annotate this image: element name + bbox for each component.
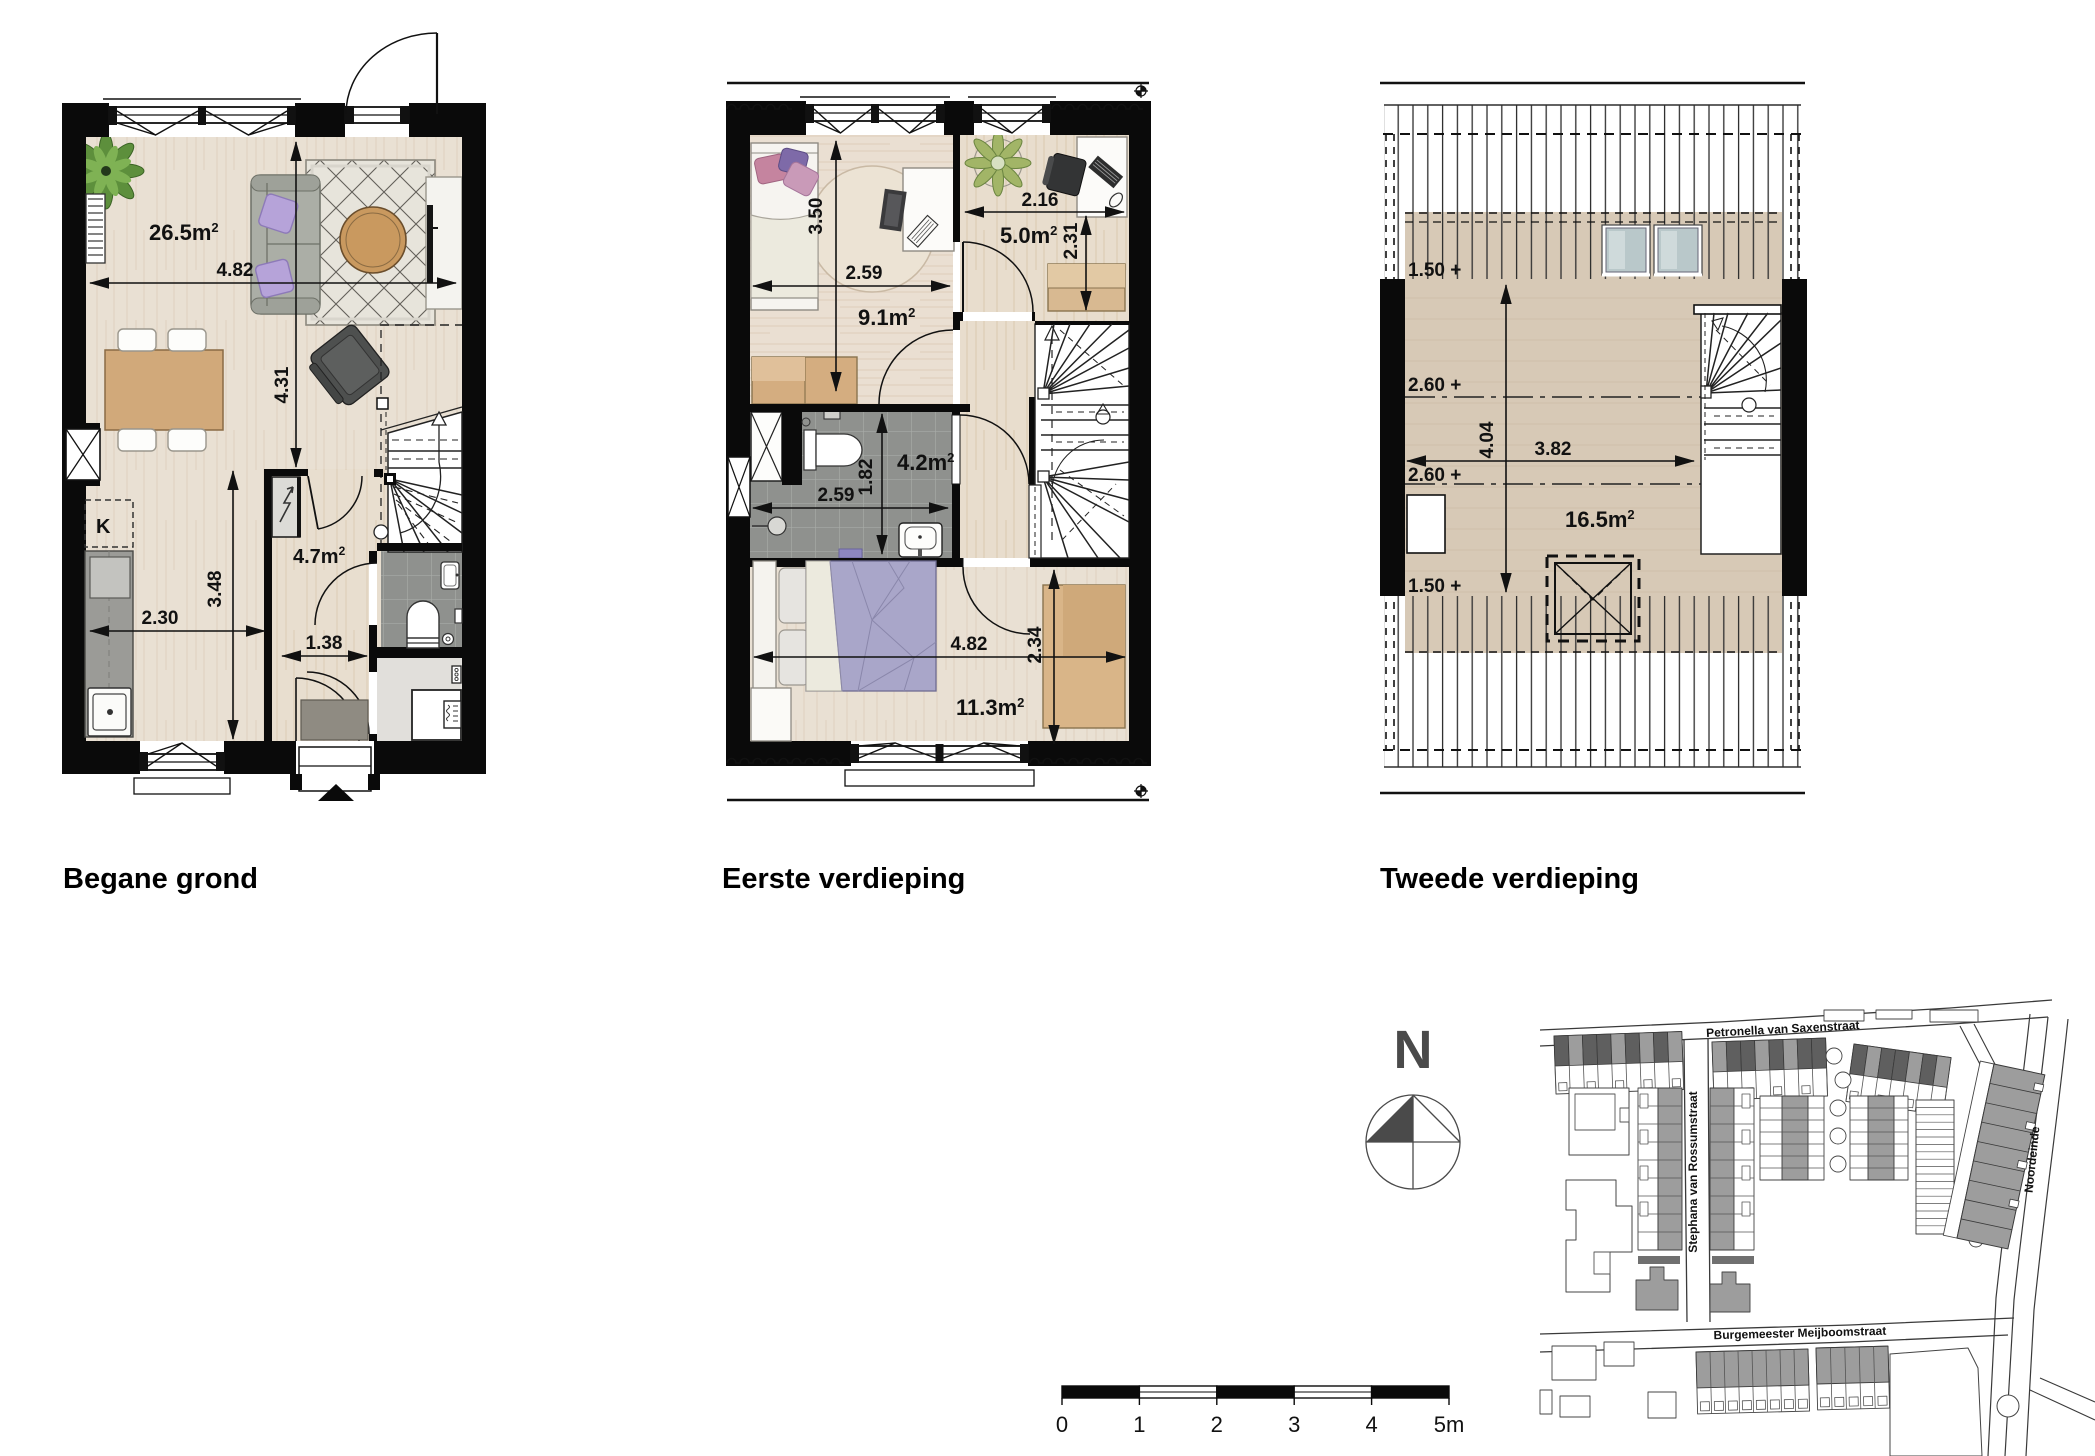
svg-text:Eerste verdieping: Eerste verdieping — [722, 863, 965, 895]
svg-text:4: 4 — [1365, 1412, 1377, 1437]
svg-text:1: 1 — [1133, 1412, 1145, 1437]
svg-text:1.38: 1.38 — [306, 633, 343, 654]
svg-text:N: N — [1394, 1020, 1433, 1080]
svg-text:9.1m2: 9.1m2 — [858, 305, 915, 330]
svg-text:1.50 +: 1.50 + — [1408, 576, 1461, 597]
svg-text:11.3m2: 11.3m2 — [956, 695, 1024, 720]
svg-text:4.82: 4.82 — [217, 260, 254, 281]
svg-text:3.48: 3.48 — [205, 571, 226, 608]
svg-text:2.60 +: 2.60 + — [1408, 375, 1461, 396]
svg-text:26.5m2: 26.5m2 — [149, 220, 219, 245]
svg-text:3.50: 3.50 — [806, 198, 827, 235]
svg-text:Begane grond: Begane grond — [63, 863, 258, 895]
svg-text:4.2m2: 4.2m2 — [897, 450, 954, 475]
svg-text:2.59: 2.59 — [846, 263, 883, 284]
svg-text:3.82: 3.82 — [1535, 439, 1572, 460]
svg-text:16.5m2: 16.5m2 — [1565, 507, 1635, 532]
svg-text:Tweede verdieping: Tweede verdieping — [1380, 863, 1639, 895]
svg-text:5.0m2: 5.0m2 — [1000, 223, 1057, 248]
svg-text:2.16: 2.16 — [1022, 190, 1059, 211]
svg-text:2.30: 2.30 — [142, 608, 179, 629]
svg-text:2.60 +: 2.60 + — [1408, 465, 1461, 486]
svg-text:2.34: 2.34 — [1025, 626, 1046, 663]
svg-text:Stephana van Rossumstraat: Stephana van Rossumstraat — [1686, 1091, 1700, 1252]
svg-text:0: 0 — [1056, 1412, 1068, 1437]
svg-text:2: 2 — [1211, 1412, 1223, 1437]
svg-text:4.82: 4.82 — [951, 634, 988, 655]
svg-text:1.82: 1.82 — [856, 459, 877, 496]
svg-text:1.50 +: 1.50 + — [1408, 260, 1461, 281]
svg-text:5m: 5m — [1434, 1412, 1465, 1437]
svg-text:3: 3 — [1288, 1412, 1300, 1437]
svg-text:4.31: 4.31 — [272, 366, 293, 403]
svg-text:2.31: 2.31 — [1061, 222, 1082, 259]
svg-text:4.7m2: 4.7m2 — [293, 544, 346, 568]
svg-text:K: K — [96, 516, 111, 538]
svg-text:2.59: 2.59 — [818, 485, 855, 506]
svg-text:4.04: 4.04 — [1477, 421, 1498, 458]
